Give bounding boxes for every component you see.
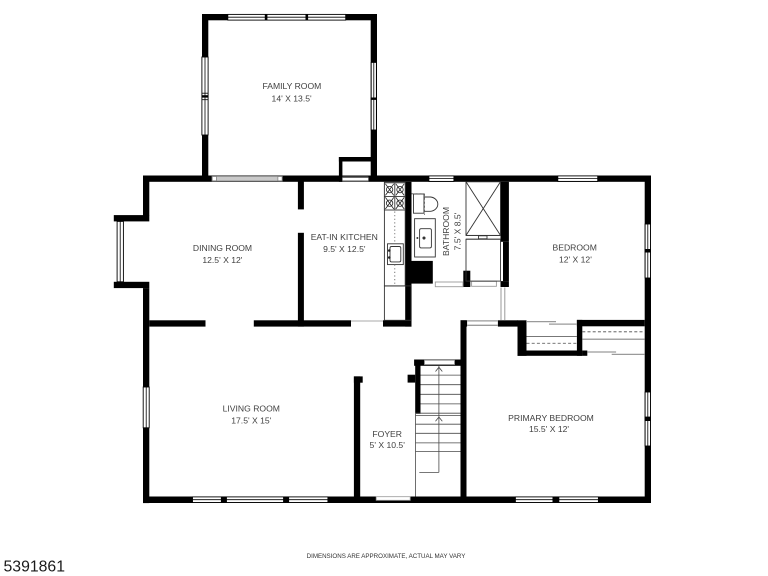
svg-text:14' X 13.5': 14' X 13.5' <box>272 94 312 104</box>
svg-text:5391861: 5391861 <box>4 559 66 576</box>
svg-text:FAMILY ROOM: FAMILY ROOM <box>262 81 321 91</box>
svg-text:DIMENSIONS ARE APPROXIMATE, AC: DIMENSIONS ARE APPROXIMATE, ACTUAL MAY V… <box>307 553 466 560</box>
svg-text:15.5' X 12': 15.5' X 12' <box>529 424 569 434</box>
svg-text:PRIMARY BEDROOM: PRIMARY BEDROOM <box>508 413 594 423</box>
svg-text:LIVING ROOM: LIVING ROOM <box>223 403 280 413</box>
svg-text:9.5' X 12.5': 9.5' X 12.5' <box>323 244 366 254</box>
svg-text:7.5' X 8.5': 7.5' X 8.5' <box>453 212 463 250</box>
svg-text:DINING ROOM: DINING ROOM <box>193 243 252 253</box>
svg-text:12.5' X 12': 12.5' X 12' <box>202 255 242 265</box>
svg-text:BEDROOM: BEDROOM <box>552 243 596 253</box>
svg-text:EAT-IN KITCHEN: EAT-IN KITCHEN <box>311 232 378 242</box>
svg-text:5' X 10.5': 5' X 10.5' <box>370 440 406 450</box>
svg-text:FOYER: FOYER <box>372 429 402 439</box>
svg-text:BATHROOM: BATHROOM <box>441 207 451 256</box>
svg-text:12' X 12': 12' X 12' <box>559 254 592 264</box>
svg-text:17.5' X 15': 17.5' X 15' <box>231 416 271 426</box>
